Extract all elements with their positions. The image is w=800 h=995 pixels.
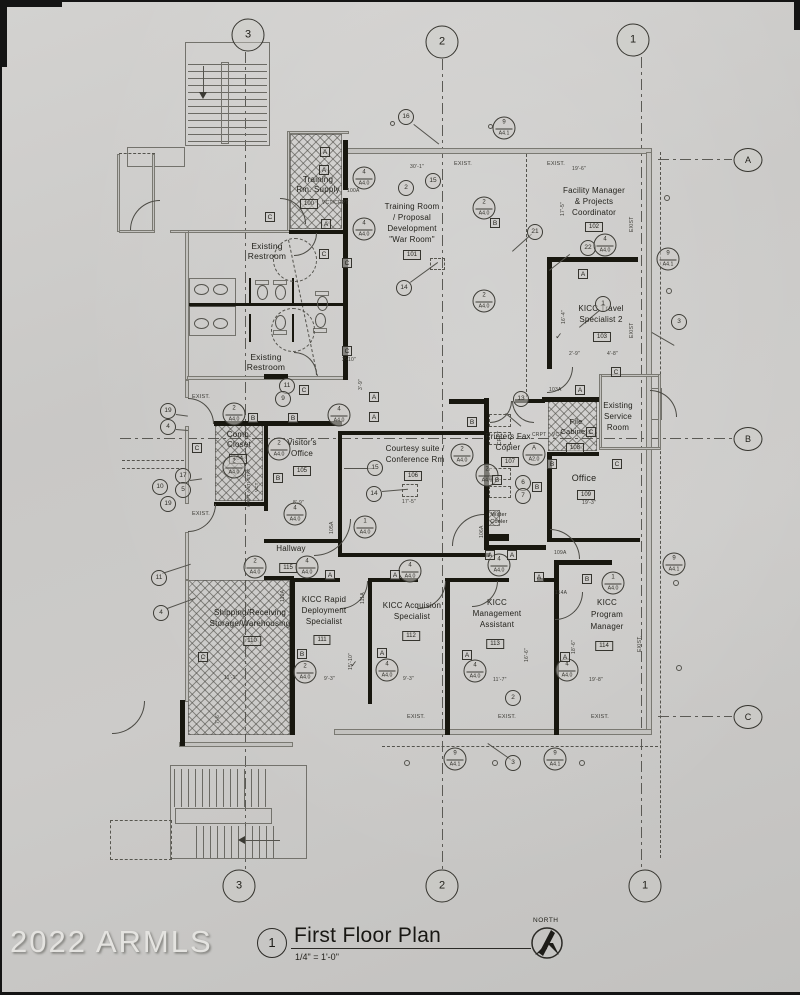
detail-reference-bubble: 4A4.0: [353, 167, 376, 190]
detail-reference-bubble: 9A4.1: [663, 553, 686, 576]
detail-sheet: A4.0: [224, 416, 245, 425]
door-arc: [650, 390, 677, 417]
detail-number: 1: [605, 573, 622, 585]
scan-edge-top-right: [794, 2, 800, 30]
room-label: Deployment: [302, 607, 347, 615]
dashed-line: [382, 746, 658, 747]
room-label: / Proposal: [393, 214, 431, 222]
plan-text: CRPT: [532, 433, 546, 439]
wall-type-tag: B: [582, 574, 592, 584]
callout-bubble: 19: [160, 403, 176, 419]
leader-line: [176, 414, 188, 417]
plan-text: 11'-7": [493, 678, 507, 684]
callout-bubble: 4: [160, 419, 176, 435]
detail-reference-bubble: 2A4.0: [244, 556, 267, 579]
detail-sheet: A4.0: [355, 529, 376, 538]
plan-text: 111A: [361, 592, 367, 604]
fixture-circle: [275, 315, 286, 330]
room-label: KICC: [597, 599, 617, 607]
wall-type-tag: C: [319, 249, 329, 259]
scan-edge-top-left-v: [2, 2, 7, 67]
wall-type-tag: A: [321, 219, 331, 229]
room-label: Room: [607, 424, 629, 432]
room-label: Existing: [250, 353, 281, 362]
wall-type-tag: A: [319, 165, 329, 175]
fixture-circle: [194, 318, 209, 329]
room-number: 112: [402, 631, 420, 641]
callout-bubble: 9: [275, 391, 291, 407]
wall-new: [264, 423, 268, 511]
grid-bubble: 1: [629, 870, 662, 903]
room-number: 100: [300, 199, 318, 209]
callout-bubble: 5: [175, 482, 191, 498]
plan-text: ✓: [555, 332, 563, 342]
outline-box: [127, 147, 185, 167]
detail-sheet: A4.0: [354, 231, 375, 240]
wall-new: [180, 700, 185, 746]
detail-number: 2: [297, 662, 314, 674]
grid-line: [120, 438, 732, 439]
detail-number: 4: [299, 557, 316, 569]
plan-text: 3'-9": [359, 379, 365, 390]
wall-existing: [334, 729, 652, 735]
detail-number: 4: [356, 168, 373, 180]
detail-number: A: [526, 444, 543, 456]
wall-new: [547, 257, 552, 369]
detail-reference-bubble: 4A4.0: [376, 659, 399, 682]
detail-sheet: A2.0: [524, 456, 545, 465]
detail-sheet: A4.0: [329, 417, 350, 426]
detail-sheet: A4.0: [269, 451, 290, 460]
solid-line: [244, 840, 280, 841]
dashed-box: [110, 820, 172, 860]
room-label: Courtesy suite /: [386, 445, 445, 453]
grid-line: [658, 159, 732, 160]
fixture-circle: [390, 121, 395, 126]
wall-new: [554, 560, 559, 735]
solid-line: [189, 306, 236, 307]
wall-type-tag: C: [342, 258, 352, 268]
watermark: 2022 ARMLS: [10, 924, 213, 960]
room-label: Training Room: [385, 203, 440, 211]
callout-bubble: 14: [366, 486, 382, 502]
detail-number: 9: [666, 554, 683, 566]
plan-text: 19'-3": [582, 501, 596, 507]
detail-number: 9: [496, 118, 513, 130]
wall-existing: [599, 374, 661, 377]
wall-new: [340, 553, 490, 557]
room-number: 110: [243, 636, 261, 646]
plan-text: EXIST.: [192, 511, 210, 517]
plan-text: EXIST.: [192, 394, 210, 400]
wall-existing: [599, 374, 602, 450]
grid-bubble: C: [734, 705, 763, 729]
wall-type-tag: A: [534, 572, 544, 582]
room-label: Development: [387, 225, 436, 233]
detail-sheet: A4.1: [664, 566, 685, 575]
fixture-circle: [676, 665, 682, 671]
room-label: KICC Acquision: [383, 602, 441, 610]
detail-number: 2: [454, 445, 471, 457]
detail-number: 9: [547, 749, 564, 761]
room-label: Hallway: [276, 545, 305, 553]
wall-type-tag: A: [507, 550, 517, 560]
plan-text: 2'-10": [342, 358, 356, 364]
wall-type-tag: B: [492, 475, 502, 485]
detail-reference-bubble: 2A4.0: [294, 661, 317, 684]
detail-number: 4: [379, 660, 396, 672]
plan-text: 110A: [281, 590, 287, 602]
wall-new: [542, 397, 599, 402]
plan-text: ✓: [350, 660, 358, 670]
grid-bubble: 2: [426, 870, 459, 903]
plan-text: VCT: [552, 433, 563, 439]
detail-number: 2: [476, 291, 493, 303]
detail-number: 2: [247, 557, 264, 569]
detail-sheet: A4.0: [474, 303, 495, 312]
wall-type-tag: C: [299, 385, 309, 395]
wall-existing: [185, 580, 189, 702]
detail-number: 2: [226, 457, 243, 469]
dashed-line: [122, 468, 184, 469]
door-arc: [130, 200, 160, 230]
callout-bubble: 15: [367, 460, 383, 476]
wall-type-tag: A: [369, 392, 379, 402]
room-number: 102: [585, 222, 603, 232]
room-number: 114: [595, 641, 613, 651]
room-label: Specialist 2: [579, 316, 622, 324]
wall-type-tag: A: [369, 412, 379, 422]
detail-sheet: A4.1: [445, 761, 466, 770]
fixture-circle: [664, 195, 670, 201]
room-label: Cooler: [490, 520, 507, 526]
scanned-floor-plan-sheet: TrainingRm. Supply100Training Room/ Prop…: [0, 0, 800, 995]
stair-direction-arrow-icon: [199, 92, 207, 99]
detail-reference-bubble: 4A4.0: [296, 556, 319, 579]
detail-sheet: A4.0: [224, 469, 245, 478]
wall-type-tag: B: [297, 649, 307, 659]
wall-new: [249, 278, 251, 306]
wall-type-tag: B: [248, 413, 258, 423]
title-underline: [291, 948, 531, 949]
detail-number: 4: [402, 561, 419, 573]
wall-type-tag: A: [560, 652, 570, 662]
wall-existing: [170, 230, 189, 233]
detail-sheet: A4.0: [452, 457, 473, 466]
plan-text: 100A: [347, 189, 359, 195]
room-label: Restroom: [248, 252, 286, 261]
room-label: Water: [491, 513, 506, 519]
outline-box: [175, 808, 272, 824]
room-number: 111: [313, 635, 330, 645]
room-label: Comp.: [227, 431, 252, 439]
plan-text: EXIST.: [638, 636, 644, 652]
plan-text: VCT/CRPT: [322, 201, 349, 207]
room-label: Shipping/Receiving: [214, 609, 286, 617]
wall-type-tag: C: [192, 443, 202, 453]
room-number: 107: [501, 457, 519, 467]
plan-text: 2'-9": [569, 352, 580, 358]
fixture-circle: [213, 318, 228, 329]
leader-line: [413, 124, 439, 144]
callout-bubble: 3: [505, 755, 521, 771]
detail-reference-bubble: 9A4.1: [657, 248, 680, 271]
detail-reference-bubble: 1A4.0: [602, 572, 625, 595]
wall-existing: [185, 532, 189, 580]
detail-reference-bubble: 2A4.0: [223, 403, 246, 426]
room-label: KICC: [487, 599, 507, 607]
wall-existing: [179, 742, 293, 747]
callout-bubble: 7: [515, 488, 531, 504]
wall-existing: [185, 380, 189, 398]
wall-type-tag: B: [273, 473, 283, 483]
outline-box: [313, 328, 327, 333]
wall-new: [292, 278, 294, 306]
leader-line: [652, 332, 675, 346]
plan-text: EXIST.: [454, 161, 472, 167]
callout-bubble: 11: [151, 570, 167, 586]
wall-type-tag: A: [485, 550, 495, 560]
detail-number: 2: [271, 439, 288, 451]
detail-sheet: A4.0: [354, 180, 375, 189]
detail-sheet: A4.0: [245, 569, 266, 578]
wall-type-tag: A: [578, 269, 588, 279]
wall-new: [214, 502, 266, 506]
detail-reference-bubble: 4A4.0: [328, 404, 351, 427]
wall-new: [449, 399, 487, 404]
wall-type-tag: C: [198, 652, 208, 662]
plan-text: 17'-5": [561, 202, 567, 216]
detail-reference-bubble: 2A4.0: [451, 444, 474, 467]
fixture-circle: [315, 313, 326, 328]
solid-line: [203, 66, 204, 92]
wall-new: [557, 560, 612, 565]
dashed-line: [122, 460, 184, 461]
detail-sheet: A4.0: [297, 569, 318, 578]
detail-sheet: A4.0: [489, 567, 510, 576]
fixture-circle: [275, 285, 286, 300]
dashed-box: [402, 484, 418, 497]
callout-bubble: 16: [398, 109, 414, 125]
fixture-circle: [673, 580, 679, 586]
north-arrow-icon: [530, 926, 564, 960]
detail-number: 4: [597, 235, 614, 247]
plan-text: CRPT ANTI-STAT: [247, 468, 252, 507]
room-label: Copier: [496, 444, 521, 452]
plan-text: VCT: [255, 482, 260, 492]
plan-scale: 1/4" = 1'-0": [295, 952, 339, 962]
plan-text: 103A: [549, 388, 561, 394]
room-label: Restroom: [247, 363, 285, 372]
plan-text: EXIST.: [498, 714, 516, 720]
plan-text: 18'-6": [572, 640, 578, 654]
wall-type-tag: B: [532, 482, 542, 492]
detail-number: 9: [447, 749, 464, 761]
wall-type-tag: C: [612, 459, 622, 469]
grid-bubble: B: [734, 427, 763, 451]
detail-number: 4: [356, 219, 373, 231]
wall-existing: [347, 148, 652, 154]
wall-type-tag: B: [490, 218, 500, 228]
detail-sheet: A4.0: [595, 247, 616, 256]
room-label: Closet: [227, 441, 251, 449]
room-label: Visitor's: [287, 439, 316, 447]
room-label: "War Room": [389, 236, 435, 244]
room-label: KICC Rapid: [302, 596, 346, 604]
plan-text: 16'-4": [562, 310, 568, 324]
detail-reference-bubble: AA2.0: [523, 443, 546, 466]
detail-reference-bubble: 2A4.0: [473, 197, 496, 220]
plan-text: 7'-6": [216, 713, 222, 724]
stair-direction-arrow-icon: [238, 836, 245, 844]
detail-sheet: A4.1: [494, 130, 515, 139]
fixture-circle: [213, 284, 228, 295]
wall-existing: [289, 131, 349, 134]
leader-line: [176, 429, 188, 431]
wall-new: [343, 140, 348, 190]
wall-new: [487, 534, 509, 541]
fixture-circle: [666, 288, 672, 294]
fixture-circle: [317, 296, 328, 311]
dashed-box: [430, 258, 445, 270]
detail-number: 2: [476, 198, 493, 210]
plan-text: EXIST.: [591, 714, 609, 720]
wall-new: [290, 578, 295, 735]
plan-text: 9'-3": [403, 677, 414, 683]
wall-type-tag: A: [390, 570, 400, 580]
room-label: Storage/Warehousing: [210, 620, 291, 628]
detail-sheet: A4.0: [377, 672, 398, 681]
dashed-box: [489, 486, 511, 498]
fixture-circle: [257, 285, 268, 300]
detail-reference-bubble: 9A4.1: [493, 117, 516, 140]
room-label: Conference Rm: [386, 456, 445, 464]
plan-text: 19'-6": [572, 167, 586, 173]
fixture-circle: [579, 760, 585, 766]
room-label: Specialist: [306, 618, 342, 626]
wall-type-tag: B: [547, 459, 557, 469]
wall-existing: [599, 447, 661, 450]
door-arc: [188, 398, 214, 424]
wall-type-tag: C: [265, 212, 275, 222]
wall-type-tag: C: [611, 367, 621, 377]
plan-title: First Floor Plan: [294, 924, 441, 948]
wall-type-tag: A: [462, 650, 472, 660]
grid-bubble: A: [734, 148, 763, 172]
detail-reference-bubble: 4A4.0: [353, 218, 376, 241]
detail-reference-bubble: 9A4.1: [444, 748, 467, 771]
room-label: Manager: [591, 623, 624, 631]
detail-number: 9: [660, 249, 677, 261]
detail-reference-bubble: 1A4.0: [354, 516, 377, 539]
room-label: Service: [604, 413, 632, 421]
callout-bubble: 14: [396, 280, 412, 296]
callout-bubble: 13: [513, 391, 529, 407]
detail-number: 2: [226, 404, 243, 416]
wall-type-tag: C: [586, 427, 596, 437]
room-label: File: [570, 418, 583, 426]
wall-existing: [117, 154, 120, 232]
plan-text: CRPT: [498, 431, 504, 445]
detail-reference-bubble: 4A4.0: [284, 503, 307, 526]
plan-text: EXIST.: [407, 714, 425, 720]
plan-text: 9'-3": [324, 677, 335, 683]
detail-reference-bubble: 4A4.0: [464, 660, 487, 683]
plan-text: EXIST: [630, 217, 636, 232]
wall-new: [368, 578, 372, 704]
outline-box: [221, 62, 229, 144]
plan-text: 106A: [480, 526, 486, 538]
door-arc: [188, 504, 216, 532]
leader-line: [190, 478, 202, 481]
room-number: 105: [293, 466, 311, 476]
wall-type-tag: B: [288, 413, 298, 423]
grid-bubble: 3: [223, 870, 256, 903]
detail-sheet: A4.0: [603, 585, 624, 594]
room-number: 101: [403, 250, 421, 260]
detail-sheet: A4.0: [295, 674, 316, 683]
room-label: Management: [473, 610, 522, 618]
door-arc: [112, 701, 145, 734]
plan-text: 30'-1": [410, 165, 424, 171]
callout-bubble: 2: [398, 180, 414, 196]
detail-reference-bubble: 4A4.0: [594, 234, 617, 257]
detail-reference-bubble: 2A4.0: [473, 290, 496, 313]
wall-existing: [119, 230, 155, 233]
wall-existing: [646, 152, 652, 735]
wall-type-tag: A: [575, 385, 585, 395]
grid-bubble: 2: [426, 26, 459, 59]
room-label: Office: [291, 450, 313, 458]
room-label: Specialist: [394, 613, 430, 621]
callout-bubble: 2: [505, 690, 521, 706]
room-number: 115: [279, 563, 297, 573]
plan-text: 4'-8": [607, 352, 618, 358]
room-number: 113: [486, 639, 504, 649]
room-label: Printers Fax: [485, 433, 531, 441]
callout-bubble: 4: [153, 605, 169, 621]
leader-line: [410, 262, 438, 283]
plan-text: 105A: [330, 522, 336, 534]
detail-number: 4: [467, 661, 484, 673]
detail-reference-bubble: 2A4.0: [268, 438, 291, 461]
fixture-circle: [404, 760, 410, 766]
grid-line: [442, 59, 443, 869]
detail-sheet: A4.0: [285, 516, 306, 525]
plan-text: EXIST.: [547, 161, 565, 167]
callout-bubble: 10: [152, 479, 168, 495]
wall-new: [340, 431, 488, 435]
north-label: NORTH: [533, 917, 559, 924]
detail-reference-bubble: 9A4.1: [544, 748, 567, 771]
detail-sheet: A4.0: [400, 573, 421, 582]
detail-sheet: A4.0: [557, 672, 578, 681]
plan-text: 19'-8": [589, 678, 603, 684]
plan-text: 11'-1": [224, 676, 238, 682]
room-label: Existing: [603, 402, 633, 410]
room-number: 103: [593, 332, 611, 342]
room-label: Rm. Supply: [296, 186, 339, 194]
plan-text: EXIST: [630, 323, 636, 338]
wall-type-tag: A: [377, 648, 387, 658]
room-label: Office: [572, 474, 597, 483]
wall-new: [445, 578, 450, 735]
plan-text: 17'-5": [402, 500, 416, 506]
callout-bubble: 3: [671, 314, 687, 330]
room-label: Facility Manager: [563, 187, 625, 195]
wall-new: [264, 576, 294, 580]
detail-reference-bubble: 4A4.0: [399, 560, 422, 583]
